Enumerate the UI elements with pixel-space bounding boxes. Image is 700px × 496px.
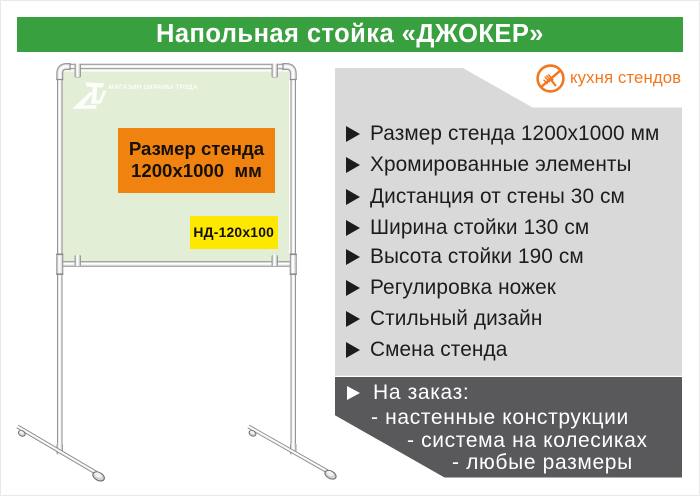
svg-text:МАГАЗИН ОХРАНЫ ТРУДА: МАГАЗИН ОХРАНЫ ТРУДА	[109, 84, 198, 91]
